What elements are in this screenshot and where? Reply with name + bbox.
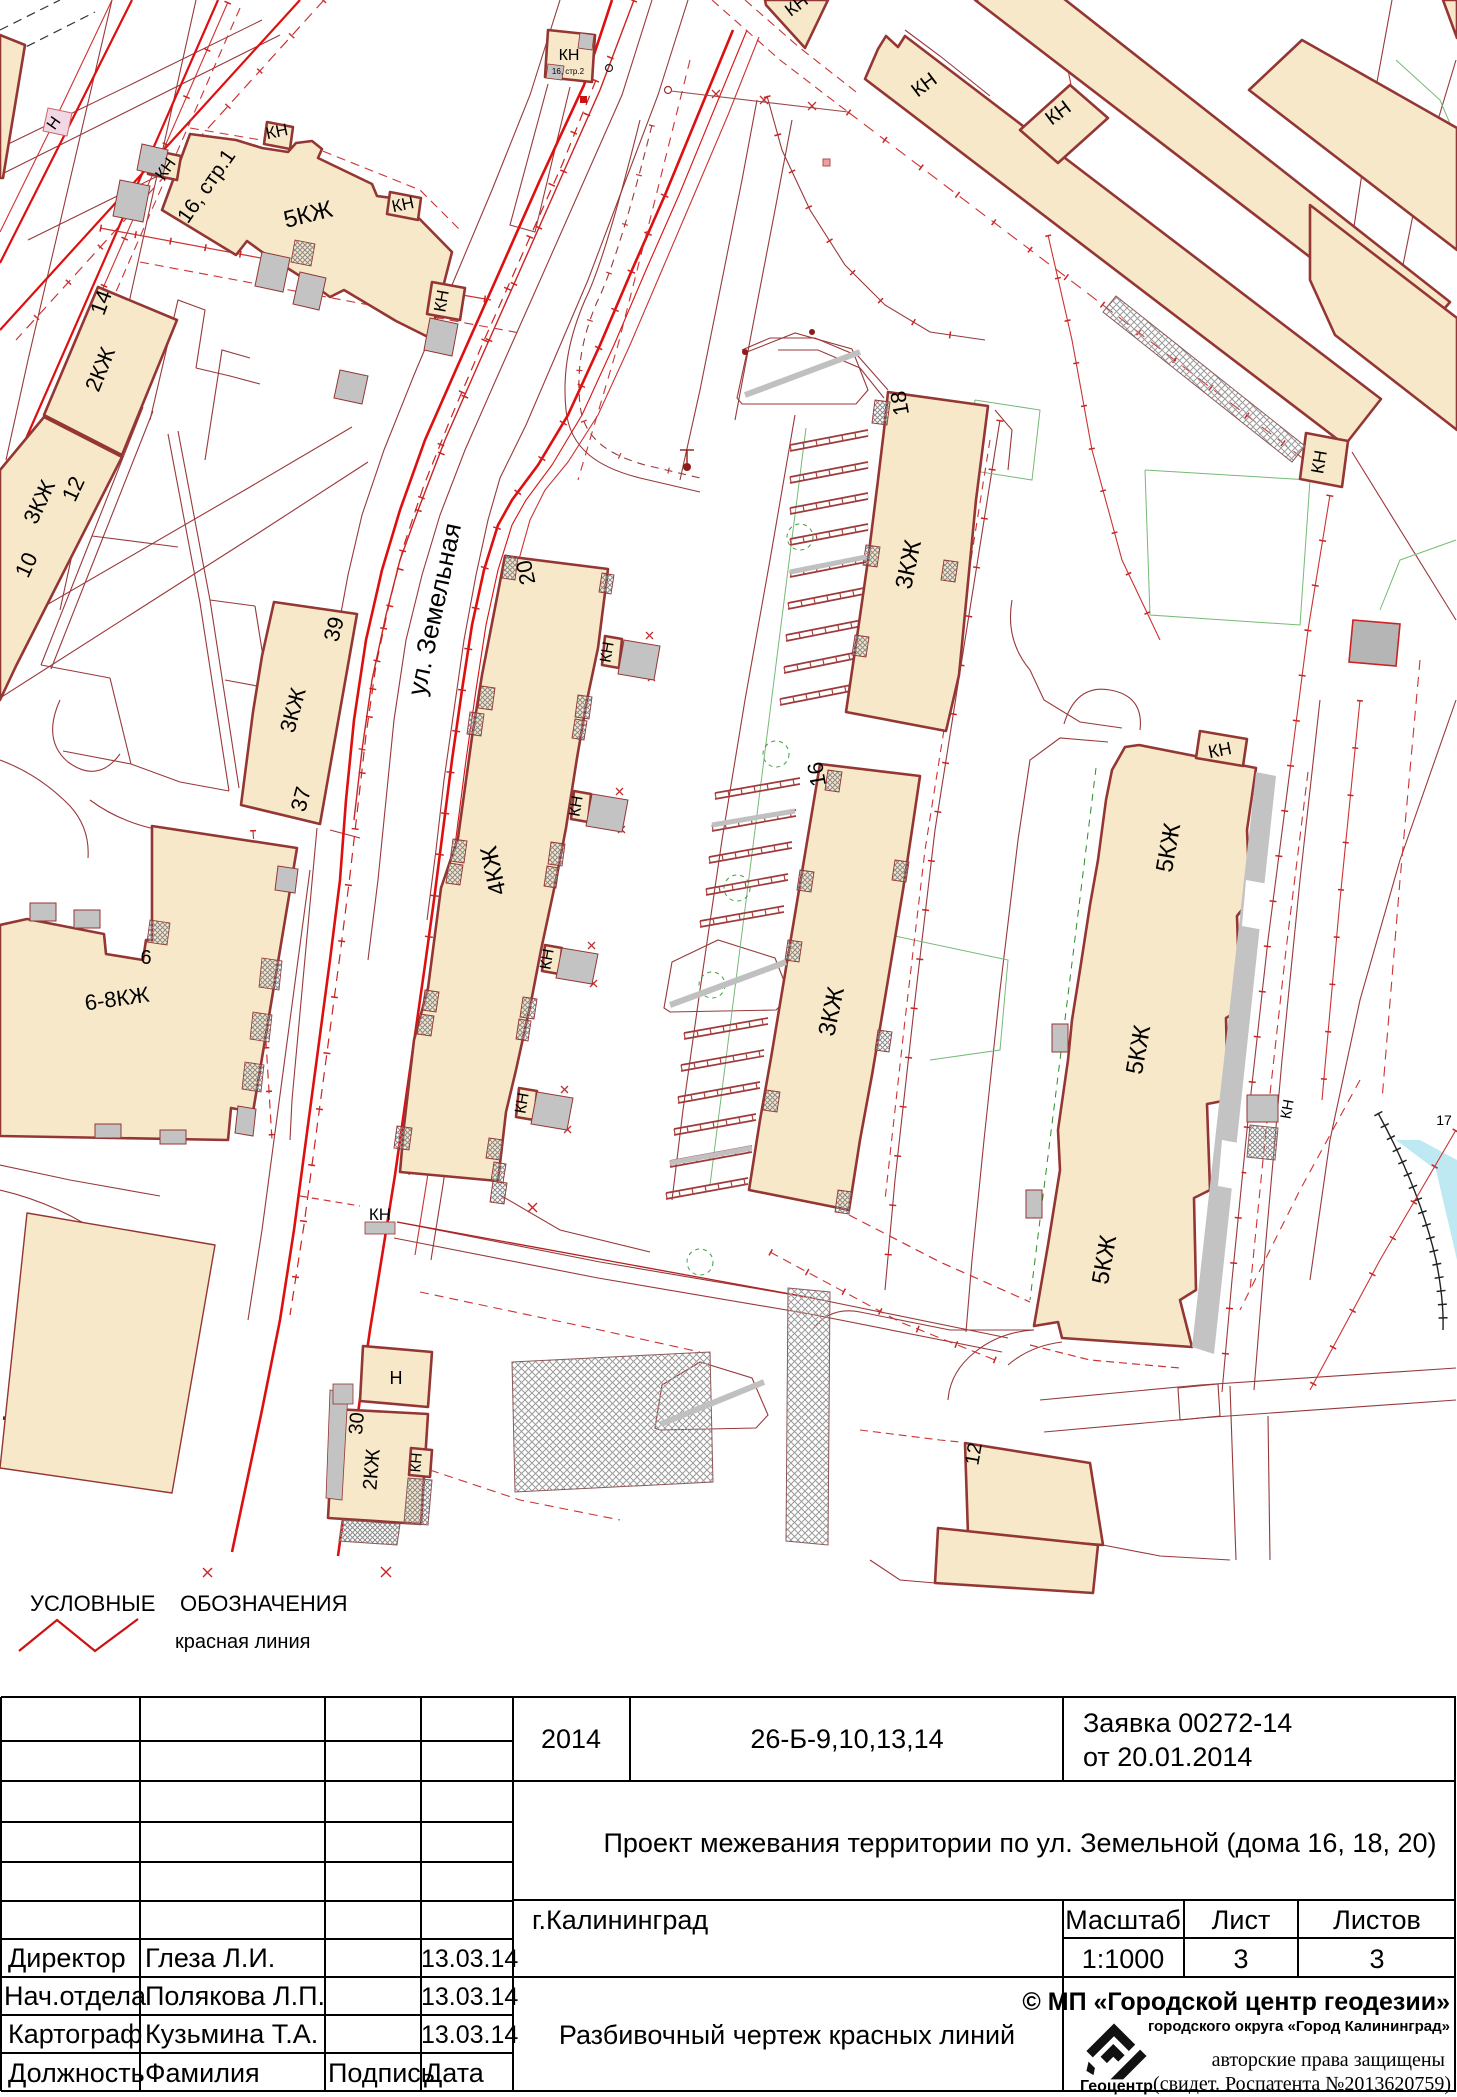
svg-text:КН: КН bbox=[566, 794, 586, 818]
svg-text:Лист: Лист bbox=[1212, 1905, 1271, 1935]
svg-text:2014: 2014 bbox=[541, 1724, 601, 1754]
svg-text:городского округа «Город Калин: городского округа «Город Калининград» bbox=[1148, 2018, 1450, 2035]
svg-text:2КЖ: 2КЖ bbox=[359, 1447, 385, 1491]
svg-text:30: 30 bbox=[345, 1411, 369, 1435]
svg-text:КН: КН bbox=[512, 1091, 532, 1115]
svg-text:Разбивочный чертеж красных лин: Разбивочный чертеж красных линий bbox=[559, 2020, 1015, 2050]
svg-text:Масштаб: Масштаб bbox=[1065, 1905, 1181, 1935]
svg-text:Геоцентр: Геоцентр bbox=[1080, 2078, 1153, 2095]
svg-text:КН: КН bbox=[559, 47, 580, 64]
svg-text:Дата: Дата bbox=[424, 2058, 485, 2088]
svg-text:12: 12 bbox=[961, 1441, 987, 1467]
svg-text:1:1000: 1:1000 bbox=[1082, 1944, 1165, 1974]
svg-text:Кузьмина Т.А.: Кузьмина Т.А. bbox=[145, 2019, 318, 2049]
svg-text:Фамилия: Фамилия bbox=[145, 2058, 260, 2088]
svg-text:3: 3 bbox=[1233, 1944, 1248, 1974]
svg-text:26-Б-9,10,13,14: 26-Б-9,10,13,14 bbox=[750, 1724, 943, 1754]
svg-text:© МП «Городской центр геодезии: © МП «Городской центр геодезии» bbox=[1022, 1988, 1450, 2016]
svg-text:Листов: Листов bbox=[1333, 1905, 1421, 1935]
svg-text:КН: КН bbox=[1277, 1098, 1297, 1120]
svg-text:Нач.отдела: Нач.отдела bbox=[4, 1981, 147, 2011]
svg-text:(свидет. Роспатента №201362075: (свидет. Роспатента №2013620759) bbox=[1153, 2073, 1451, 2095]
svg-text:г.Калининград: г.Калининград bbox=[532, 1905, 708, 1935]
svg-text:Картограф: Картограф bbox=[8, 2019, 142, 2049]
svg-text:16, стр.2: 16, стр.2 bbox=[552, 67, 585, 76]
svg-text:13.03.14: 13.03.14 bbox=[421, 2021, 518, 2049]
svg-text:13.03.14: 13.03.14 bbox=[421, 1983, 518, 2011]
svg-text:Н: Н bbox=[390, 1368, 403, 1388]
svg-text:от 20.01.2014: от 20.01.2014 bbox=[1083, 1742, 1252, 1772]
svg-text:КН: КН bbox=[369, 1205, 391, 1224]
svg-text:Проект межевания территории по: Проект межевания территории по ул. Земел… bbox=[604, 1828, 1437, 1858]
svg-text:КН: КН bbox=[537, 947, 557, 971]
svg-text:Должность: Должность bbox=[8, 2058, 145, 2088]
svg-text:3: 3 bbox=[1369, 1944, 1384, 1974]
svg-text:УСЛОВНЫЕ: УСЛОВНЫЕ bbox=[30, 1591, 155, 1616]
svg-text:13.03.14: 13.03.14 bbox=[421, 1945, 518, 1973]
svg-text:КН: КН bbox=[430, 288, 453, 313]
svg-text:20: 20 bbox=[511, 558, 541, 587]
svg-text:Директор: Директор bbox=[8, 1943, 126, 1973]
svg-text:Подпись: Подпись bbox=[328, 2058, 435, 2088]
svg-text:17: 17 bbox=[1436, 1112, 1452, 1128]
svg-text:красная линия: красная линия bbox=[175, 1631, 310, 1653]
svg-text:КН: КН bbox=[597, 640, 617, 664]
svg-text:6: 6 bbox=[140, 947, 151, 969]
svg-text:Заявка 00272-14: Заявка 00272-14 bbox=[1083, 1708, 1292, 1738]
svg-text:18: 18 bbox=[885, 389, 914, 417]
svg-text:ОБОЗНАЧЕНИЯ: ОБОЗНАЧЕНИЯ bbox=[180, 1591, 347, 1616]
svg-text:КН: КН bbox=[407, 1452, 426, 1473]
svg-text:16: 16 bbox=[802, 760, 831, 788]
svg-text:авторские права защищены: авторские права защищены bbox=[1212, 2049, 1445, 2071]
svg-text:Глеза Л.И.: Глеза Л.И. bbox=[145, 1943, 275, 1973]
svg-text:КН: КН bbox=[1307, 449, 1331, 476]
svg-text:Полякова Л.П.: Полякова Л.П. bbox=[145, 1981, 325, 2011]
